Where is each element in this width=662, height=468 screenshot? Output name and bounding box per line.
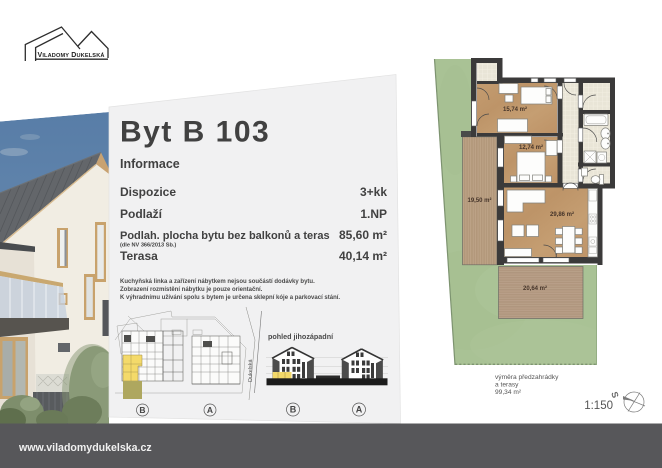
svg-text:20,64 m²: 20,64 m²	[523, 285, 547, 292]
svg-text:3+kk: 3+kk	[360, 185, 387, 199]
svg-text:B: B	[290, 405, 297, 415]
svg-text:Kuchyňská linka a zařízení náb: Kuchyňská linka a zařízení nábytkem nejs…	[120, 279, 315, 285]
svg-text:A: A	[207, 405, 213, 415]
svg-text:1.NP: 1.NP	[360, 207, 387, 221]
svg-text:K výhradnímu užívání spolu s b: K výhradnímu užívání spolu s bytem je ur…	[120, 295, 340, 301]
svg-text:Dukelská: Dukelská	[248, 358, 254, 382]
svg-text:40,14 m²: 40,14 m²	[339, 249, 387, 263]
svg-text:85,60 m²: 85,60 m²	[339, 228, 387, 242]
svg-text:A: A	[356, 405, 363, 415]
svg-text:S: S	[609, 390, 620, 399]
svg-text:www.viladomydukelska.cz: www.viladomydukelska.cz	[18, 442, 152, 454]
svg-text:pohled jihozápadní: pohled jihozápadní	[268, 332, 334, 341]
svg-text:99,34 m²: 99,34 m²	[495, 389, 522, 396]
svg-text:Informace: Informace	[120, 157, 180, 171]
svg-text:a terasy: a terasy	[495, 382, 519, 389]
svg-text:Terasa: Terasa	[120, 249, 158, 263]
svg-text:B: B	[139, 405, 145, 415]
svg-text:12,74 m²: 12,74 m²	[519, 144, 543, 151]
svg-text:Podlaží: Podlaží	[120, 207, 163, 221]
svg-text:Podlah. plocha bytu bez balkon: Podlah. plocha bytu bez balkonů a teras	[120, 230, 330, 242]
svg-text:(dle NV 366/2013 Sb.): (dle NV 366/2013 Sb.)	[120, 243, 176, 249]
svg-text:15,74 m²: 15,74 m²	[503, 106, 527, 113]
svg-text:1:150: 1:150	[584, 400, 613, 412]
svg-text:Byt B 103: Byt B 103	[120, 116, 270, 149]
svg-text:výměra předzahrádky: výměra předzahrádky	[495, 374, 559, 381]
svg-text:29,86 m²: 29,86 m²	[550, 211, 574, 218]
svg-text:VILADOMY DUKELSKÁ: VILADOMY DUKELSKÁ	[38, 52, 105, 59]
svg-text:Zobrazení rozmístění nábytku j: Zobrazení rozmístění nábytku je pouze or…	[120, 287, 263, 293]
svg-text:Dispozice: Dispozice	[120, 185, 176, 199]
svg-text:19,50 m²: 19,50 m²	[467, 197, 491, 204]
